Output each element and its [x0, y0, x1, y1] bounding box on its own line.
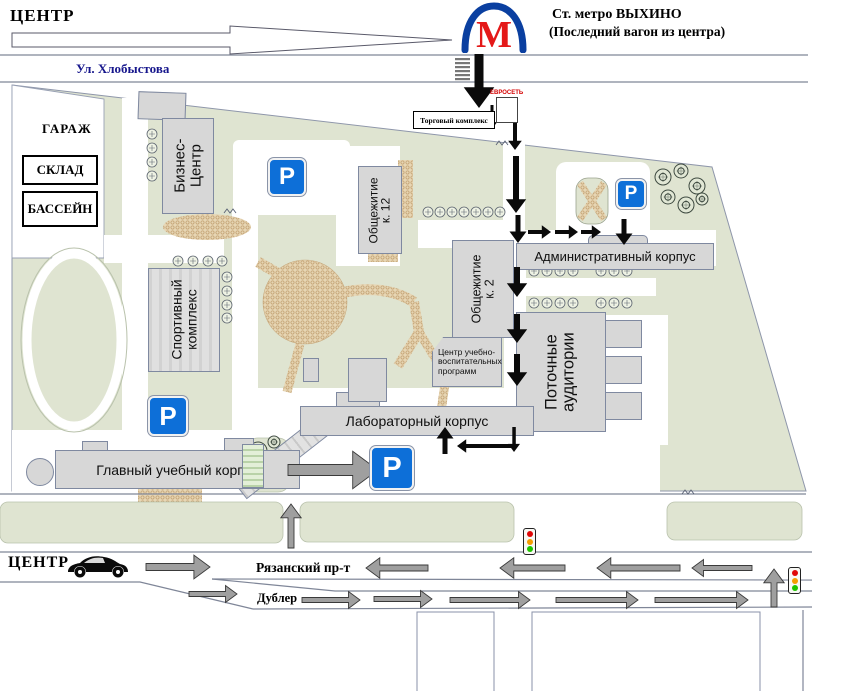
tree-icon [147, 157, 157, 167]
building-label: Бизнес- Центр [172, 139, 203, 193]
tree-icon [542, 298, 552, 308]
tree-icon [147, 171, 157, 181]
building-admin: Административный корпус [516, 243, 714, 270]
tree-icon [529, 298, 539, 308]
building-lecture-wing [602, 392, 642, 420]
building-sport-complex: Спортивный комплекс [148, 268, 220, 372]
metro-note-label: (Последний вагон из центра) [549, 24, 725, 40]
building-business-center: Бизнес- Центр [162, 118, 214, 214]
street-khlobystova-label: Ул. Хлобыстова [76, 61, 169, 77]
tree-icon [222, 300, 232, 310]
building-dorm-2: Общежитие к. 2 [452, 240, 514, 338]
building-lecture-wing [602, 356, 642, 384]
tree-icon [696, 193, 708, 205]
tree-icon [188, 256, 198, 266]
campus-map: Бизнес- Центр Общежитие к. 12 Спортивный… [0, 0, 864, 691]
building-label: Административный корпус [534, 249, 695, 264]
traffic-light-icon [523, 528, 536, 555]
building-label: Общежитие к. 2 [470, 255, 496, 324]
shopping-center-box: Торговый комплекс [413, 111, 495, 129]
flowerbed [576, 178, 608, 224]
map-terrain [0, 0, 864, 691]
ryazansky-avenue-label: Рязанский пр-т [256, 560, 350, 576]
tree-icon [217, 256, 227, 266]
parking-sign: P [268, 158, 306, 196]
building-label: Поточные аудитории [544, 332, 578, 412]
parking-sign: P [616, 179, 646, 209]
tree-icon [459, 207, 469, 217]
metro-logo-icon: М [459, 1, 529, 53]
building-label: Лабораторный корпус [346, 413, 489, 429]
tree-icon [147, 129, 157, 139]
tree-icon [568, 298, 578, 308]
small-building [303, 358, 319, 382]
tree-icon [203, 256, 213, 266]
tree-icon [147, 143, 157, 153]
pool-box: БАССЕЙН [22, 191, 98, 227]
building-edu-center: Центр учебно- воспитательных программ [432, 337, 502, 387]
tree-icon [678, 197, 694, 213]
garage-label: ГАРАЖ [42, 121, 92, 137]
center-label-bottom: ЦЕНТР [8, 554, 69, 572]
building-main-round-end [26, 458, 54, 486]
traffic-light-icon [788, 567, 801, 594]
center-direction-arrow-icon [12, 26, 452, 54]
metro-station-label: Ст. метро ВЫХИНО [552, 7, 682, 23]
tree-icon [435, 207, 445, 217]
tree-icon [674, 164, 688, 178]
lawn-strips [0, 502, 802, 543]
evroset-label: ЕВРОСЕТЬ [490, 90, 523, 96]
building-lecture-wing [602, 320, 642, 348]
tree-icon [609, 298, 619, 308]
tree-icon [173, 256, 183, 266]
building-dorm-12: Общежитие к. 12 [358, 166, 402, 254]
building-main-courtyard [242, 444, 264, 488]
tree-icon [596, 298, 606, 308]
service-road-label: Дублер [257, 591, 297, 606]
tree-icon [222, 313, 232, 323]
center-label-top: ЦЕНТР [10, 6, 75, 26]
metro-m-letter: М [476, 14, 512, 53]
building-label: Спортивный комплекс [169, 280, 198, 360]
tree-icon [495, 207, 505, 217]
building-label: Центр учебно- воспитательных программ [438, 348, 502, 377]
tree-icon [655, 169, 671, 185]
evroset-kiosk: ЕВРОСЕТЬ [490, 90, 523, 123]
tree-icon [471, 207, 481, 217]
metro-stairs-icon [455, 58, 470, 80]
parking-sign: P [370, 446, 414, 490]
evroset-building [496, 97, 518, 123]
tree-icon [689, 178, 705, 194]
tree-icon [661, 190, 675, 204]
building-label: Общежитие к. 12 [368, 177, 393, 243]
tree-icon [622, 298, 632, 308]
tree-icon [555, 298, 565, 308]
warehouse-box: СКЛАД [22, 155, 98, 185]
building-label: Главный учебный корпус [96, 462, 258, 478]
car-icon [66, 549, 130, 586]
parking-sign: P [148, 396, 188, 436]
tree-icon [222, 286, 232, 296]
building-lab: Лабораторный корпус [300, 406, 534, 436]
tree-icon [423, 207, 433, 217]
building-business-center-annex [138, 91, 187, 121]
tree-icon [483, 207, 493, 217]
tree-icon [447, 207, 457, 217]
small-building [348, 358, 387, 402]
tree-icon [222, 272, 232, 282]
